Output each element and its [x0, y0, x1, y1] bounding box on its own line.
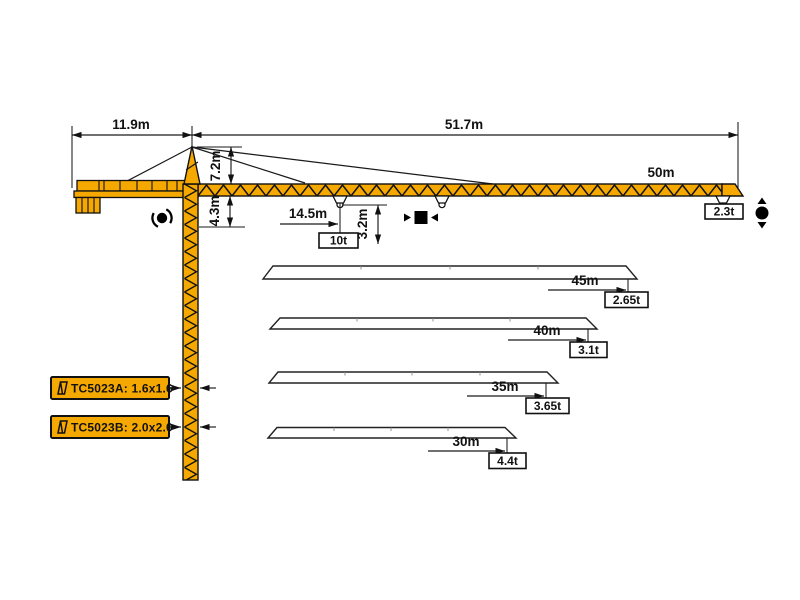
- config-40m-load: 3.1t: [578, 343, 599, 357]
- max-load-value: 10t: [330, 234, 347, 248]
- tower-mast: [183, 146, 200, 480]
- jib-working-length-label: 51.7m: [445, 117, 483, 132]
- diagram-canvas: 11.9m 51.7m 50m: [0, 0, 800, 600]
- slewing-rotation-icon: [149, 205, 175, 231]
- config-45m-load: 2.65t: [613, 293, 640, 307]
- hook-clearance-label: 3.2m: [355, 209, 370, 240]
- main-jib-length-label: 50m: [647, 165, 674, 180]
- config-35m-load: 3.65t: [534, 399, 561, 413]
- jib-to-slewing-label: 4.3m: [207, 196, 222, 227]
- trolley-travel-icon: [404, 211, 438, 224]
- mast-option-b-label: TC5023B: 2.0x2.0: [71, 421, 173, 435]
- max-load-radius-label: 14.5m: [289, 206, 327, 221]
- mast-lattice: [183, 184, 198, 480]
- config-30m-length: 30m: [452, 434, 479, 449]
- counter-jib: [74, 181, 198, 214]
- config-45m-length: 45m: [571, 273, 598, 288]
- jib-config-45m: 45m 2.65t: [263, 266, 648, 308]
- mast-option-a-label: TC5023A: 1.6x1.6: [71, 382, 173, 396]
- hook-hoist-icon: [756, 198, 769, 229]
- config-35m-length: 35m: [491, 379, 518, 394]
- counter-jib-chord: [74, 191, 198, 198]
- counter-jib-length-label: 11.9m: [112, 117, 150, 132]
- jib-config-40m: 40m 3.1t: [270, 318, 607, 358]
- cat-head-apex: [184, 146, 200, 184]
- max-load-annotation: 14.5m 10t 3.2m: [280, 203, 387, 248]
- crane-load-diagram: 11.9m 51.7m 50m: [0, 0, 800, 600]
- hook-mid: [435, 196, 449, 208]
- cat-head-height-label: 7.2m: [208, 151, 223, 182]
- tip-load-annotation: 2.3t: [705, 204, 743, 219]
- tip-load-value: 2.3t: [714, 205, 735, 219]
- jib-tip: [722, 184, 743, 196]
- jib-config-35m: 35m 3.65t: [269, 372, 569, 414]
- config-40m-length: 40m: [533, 323, 560, 338]
- config-30m-load: 4.4t: [497, 454, 518, 468]
- main-jib: 50m: [198, 165, 743, 196]
- jib-config-30m: 30m 4.4t: [268, 428, 526, 469]
- jib-lattice: [198, 184, 722, 196]
- trolley-hooks: [333, 196, 730, 208]
